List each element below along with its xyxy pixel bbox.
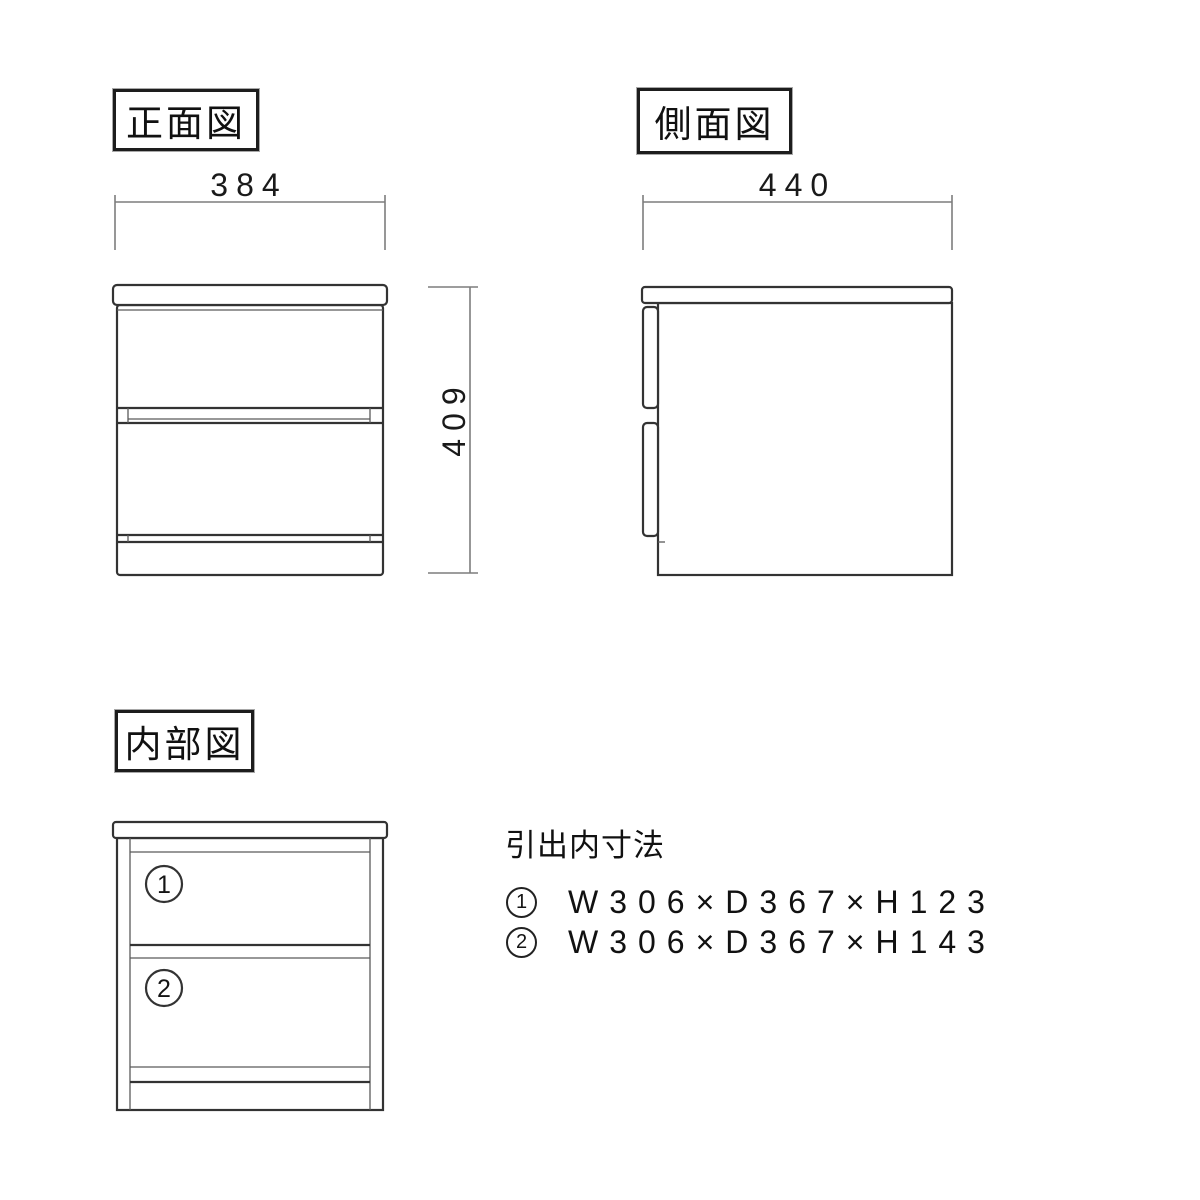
front-top-board [113,285,387,305]
front-height-dimension-value: 409 [434,318,474,518]
side-view-drawing [642,287,952,575]
internal-view-label: 内部図 [125,714,245,768]
drawer-dimension-row-1: 1 W306×D367×H123 [506,882,996,922]
side-top-board [642,287,952,303]
compartment-1-number: 1 [157,871,171,899]
page: 1 2 正面図 側面図 内部図 384 440 409 引出内寸法 1 W306… [0,0,1200,1200]
side-view-label-box: 側面図 [637,88,792,154]
internal-view-drawing: 1 2 [113,822,387,1110]
side-body [658,303,952,575]
internal-view-label-box: 内部図 [115,710,254,772]
side-depth-dimension-lines [643,195,952,250]
side-view-label: 側面図 [655,94,775,148]
row-1-dimension-text: W306×D367×H123 [568,884,996,921]
row-2-dimension-text: W306×D367×H143 [568,924,996,961]
drawer-dimension-row-2: 2 W306×D367×H143 [506,922,996,962]
side-depth-dimension-value: 440 [643,170,952,200]
front-view-drawing [113,285,387,575]
front-width-dimension-value: 384 [113,170,385,200]
side-drawer-1-front [643,307,658,408]
internal-top-board [113,822,387,838]
drawer-dimensions-heading: 引出内寸法 [505,820,665,865]
row-1-circled-number: 1 [506,887,537,918]
drawer-dimensions-list: 1 W306×D367×H123 2 W306×D367×H143 [506,882,996,962]
row-2-circled-number: 2 [506,927,537,958]
compartment-2-number: 2 [157,975,171,1003]
front-view-label-box: 正面図 [113,89,259,151]
front-view-label: 正面図 [126,93,246,147]
front-width-dimension-lines [115,195,385,250]
side-drawer-2-front [643,423,658,536]
